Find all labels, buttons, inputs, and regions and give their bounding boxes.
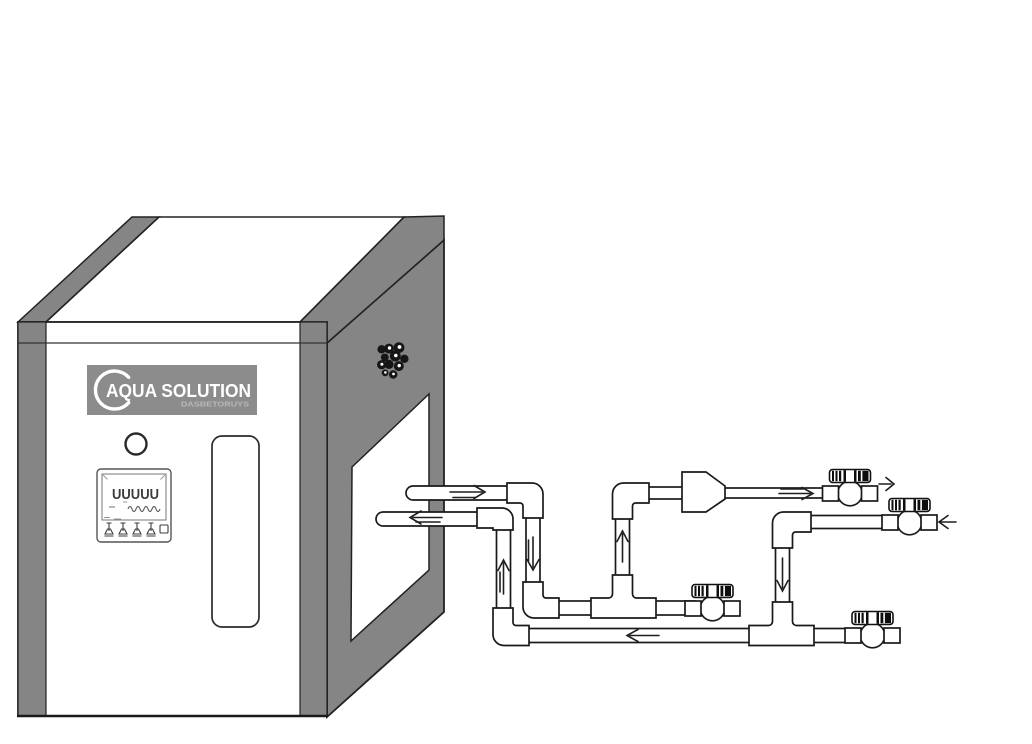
svg-text:UUUUU: UUUUU [112, 486, 159, 503]
svg-text:AQUA SOLUTION: AQUA SOLUTION [106, 380, 251, 401]
svg-text:DASBETORUYS: DASBETORUYS [181, 400, 249, 409]
